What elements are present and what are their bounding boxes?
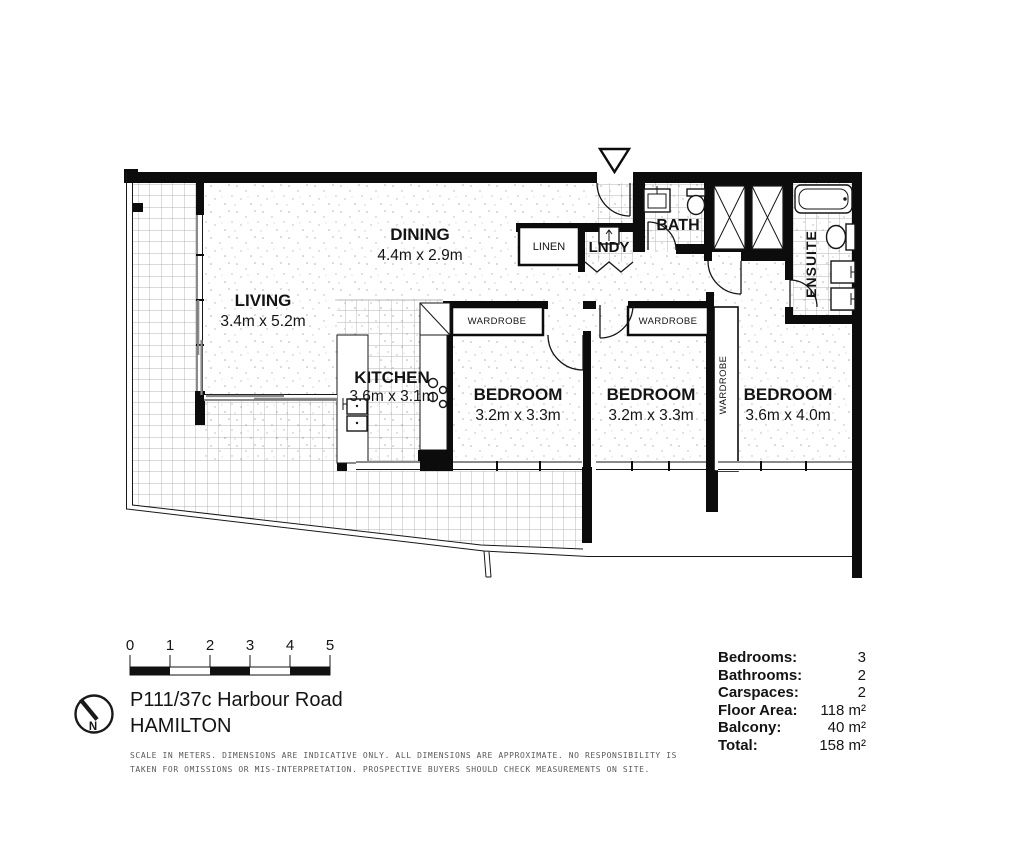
- stat-value-balcony: 40 m²: [828, 719, 866, 736]
- scale-label-1: 1: [166, 637, 174, 654]
- room-label-bedroom2: BEDROOM: [607, 385, 696, 404]
- stat-label-carspaces: Carspaces:: [718, 684, 799, 701]
- entry-floor: [597, 183, 633, 225]
- bath-toilet: [687, 189, 705, 215]
- address-block: P111/37c Harbour Road HAMILTON: [130, 689, 343, 737]
- stat-label-bathrooms: Bathrooms:: [718, 667, 802, 684]
- scale-label-2: 2: [206, 637, 214, 654]
- disclaimer: SCALE IN METERS. DIMENSIONS ARE INDICATI…: [130, 751, 677, 774]
- property-stats: Bedrooms: 3 Bathrooms: 2 Carspaces: 2 Fl…: [718, 649, 866, 754]
- stat-label-balcony: Balcony:: [718, 719, 781, 736]
- room-label-bedroom1: BEDROOM: [474, 385, 563, 404]
- room-label-living: LIVING: [235, 291, 292, 310]
- stat-label-bedrooms: Bedrooms:: [718, 649, 797, 666]
- stat-value-carspaces: 2: [858, 684, 866, 701]
- bath-sink: [644, 186, 670, 212]
- room-label-bath: BATH: [656, 217, 699, 234]
- compass-north-label: N: [89, 721, 97, 733]
- floor-plan-drawing: DINING 4.4m x 2.9m LIVING 3.4m x 5.2m KI…: [0, 0, 1024, 866]
- ensuite-toilet: [827, 224, 856, 250]
- disclaimer-line1: SCALE IN METERS. DIMENSIONS ARE INDICATI…: [130, 751, 677, 760]
- room-dims-bedroom2: 3.2m x 3.3m: [608, 407, 693, 424]
- address-line2: HAMILTON: [130, 715, 232, 737]
- room-label-ensuite: ENSUITE: [803, 230, 819, 298]
- entry-marker-icon: [600, 149, 629, 172]
- stat-label-total: Total:: [718, 737, 758, 754]
- room-label-bedroom3: BEDROOM: [744, 385, 833, 404]
- stat-value-floor-area: 118 m²: [820, 702, 866, 719]
- label-wardrobe2: WARDROBE: [639, 316, 698, 327]
- address-line1: P111/37c Harbour Road: [130, 689, 343, 711]
- scale-label-3: 3: [246, 637, 254, 654]
- room-dims-bedroom1: 3.2m x 3.3m: [475, 407, 560, 424]
- room-dims-living: 3.4m x 5.2m: [220, 313, 305, 330]
- room-dims-bedroom3: 3.6m x 4.0m: [745, 407, 830, 424]
- stat-value-bedrooms: 3: [858, 649, 866, 666]
- room-dims-dining: 4.4m x 2.9m: [377, 247, 462, 264]
- disclaimer-line2: TAKEN FOR OMISSIONS OR MIS-INTERPRETATIO…: [130, 765, 650, 774]
- room-label-dining: DINING: [390, 225, 450, 244]
- scale-bar: 0 1 2 3 4 5: [126, 637, 334, 675]
- scale-label-5: 5: [326, 637, 334, 654]
- room-dims-kitchen: 3.6m x 3.1m: [349, 388, 434, 405]
- stat-value-bathrooms: 2: [858, 667, 866, 684]
- room-label-kitchen: KITCHEN: [354, 368, 430, 387]
- north-compass: N: [76, 696, 113, 734]
- stat-value-total: 158 m²: [819, 737, 866, 754]
- compass-needle-icon: [81, 700, 98, 720]
- label-wardrobe3: WARDROBE: [718, 356, 729, 415]
- ensuite-bathtub: [795, 185, 852, 213]
- floor-plan-page: DINING 4.4m x 2.9m LIVING 3.4m x 5.2m KI…: [0, 0, 1024, 866]
- label-wardrobe1: WARDROBE: [468, 316, 527, 327]
- stat-label-floor-area: Floor Area:: [718, 702, 797, 719]
- scale-label-0: 0: [126, 637, 134, 654]
- scale-label-4: 4: [286, 637, 294, 654]
- room-label-laundry: LNDY: [589, 239, 630, 256]
- room-label-linen: LINEN: [533, 241, 565, 253]
